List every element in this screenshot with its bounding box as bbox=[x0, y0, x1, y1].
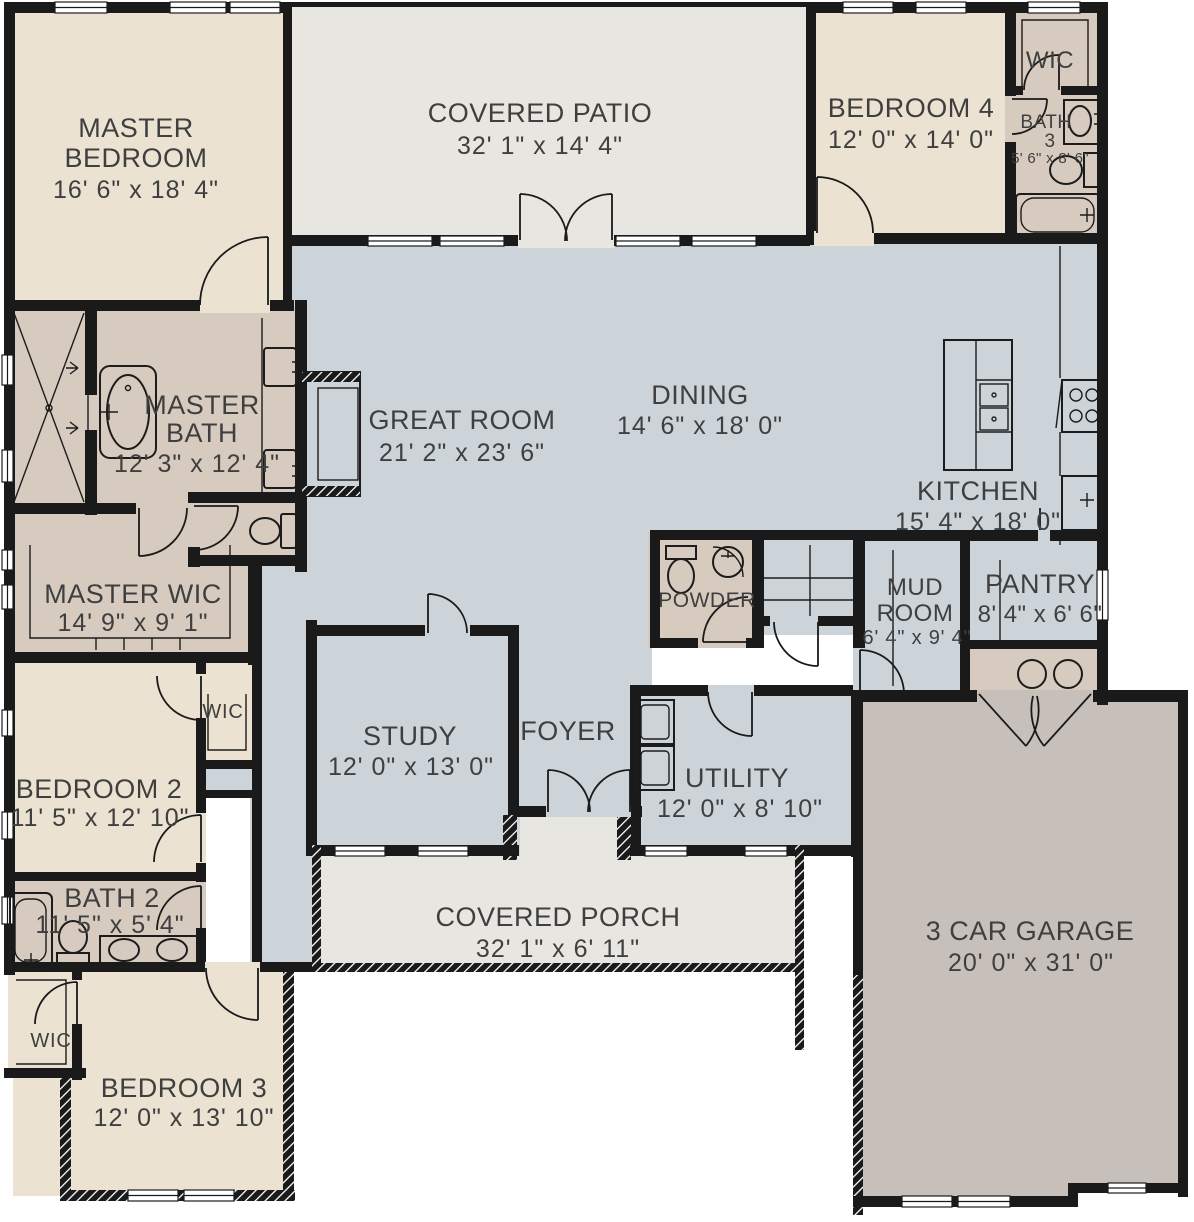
label-bath3: BATH bbox=[1020, 112, 1071, 133]
room-labels-part: 16' 6" x 18' 4" bbox=[53, 176, 219, 204]
room-labels-part: 20' 0" x 31' 0" bbox=[948, 949, 1114, 977]
walls-part bbox=[306, 620, 317, 856]
room-bedroom2-floor bbox=[8, 660, 200, 878]
label-great-room: GREAT ROOM bbox=[368, 405, 555, 435]
walls-part bbox=[960, 530, 970, 702]
room-labels-part: 14' 6" x 18' 0" bbox=[617, 412, 783, 440]
room-labels-part: 12' 0" x 13' 10" bbox=[94, 1104, 275, 1132]
walls-part bbox=[60, 1078, 71, 1200]
label-covered-porch: COVERED PORCH bbox=[435, 902, 680, 932]
room-labels-part: 11' 5" x 5' 4" bbox=[35, 911, 184, 939]
walls-part bbox=[196, 760, 258, 769]
room-labels-part: 15' 4" x 18' 0" bbox=[895, 508, 1061, 536]
label-wic-b2: WIC bbox=[202, 701, 243, 723]
label-master-wic: MASTER WIC bbox=[44, 579, 222, 609]
room-labels-part: 3 bbox=[1044, 131, 1055, 152]
walls-part bbox=[650, 530, 660, 642]
room-labels-part: 12' 0" x 8' 10" bbox=[657, 795, 823, 823]
label-bedroom4: BEDROOM 4 bbox=[828, 93, 995, 123]
walls-part bbox=[312, 963, 804, 972]
room-labels-part: 32' 1" x 6' 11" bbox=[476, 935, 640, 963]
fireplace-symbol-part bbox=[302, 372, 360, 382]
room-labels-part: ROOM bbox=[877, 600, 954, 627]
label-foyer: FOYER bbox=[520, 716, 616, 746]
label-wic-top: WIC bbox=[1026, 47, 1074, 74]
doors-part bbox=[814, 231, 874, 246]
doors-part bbox=[425, 625, 470, 636]
label-pantry: PANTRY bbox=[985, 569, 1095, 599]
label-covered-patio: COVERED PATIO bbox=[428, 98, 653, 128]
label-dining: DINING bbox=[651, 380, 749, 410]
walls-part bbox=[196, 790, 258, 798]
walls-part bbox=[617, 815, 631, 860]
floor-plan: MASTER BEDROOM 16' 6" x 18' 4" COVERED P… bbox=[0, 0, 1194, 1222]
room-labels-part: BATH bbox=[166, 418, 238, 448]
label-bedroom2: BEDROOM 2 bbox=[16, 774, 183, 804]
walls-part bbox=[188, 492, 307, 503]
floor-plan-svg: MASTER BEDROOM 16' 6" x 18' 4" COVERED P… bbox=[0, 0, 1194, 1222]
walls-part bbox=[853, 690, 977, 702]
label-study: STUDY bbox=[363, 721, 457, 751]
doors-part bbox=[853, 648, 865, 690]
walls-part bbox=[806, 2, 816, 245]
room-labels-part: 11' 5" x 12' 10" bbox=[10, 804, 189, 832]
walls-part bbox=[306, 625, 519, 636]
doors-part bbox=[698, 638, 746, 648]
label-wic-b3: WIC bbox=[30, 1030, 71, 1052]
label-utility: UTILITY bbox=[685, 763, 789, 793]
entry-landing-floor bbox=[505, 815, 632, 860]
walls-part bbox=[85, 305, 97, 395]
room-labels-part: BEDROOM bbox=[64, 143, 207, 173]
room-labels-part: 14' 9" x 9' 1" bbox=[57, 609, 208, 637]
label-mud-room: MUD bbox=[887, 574, 943, 601]
label-garage: 3 CAR GARAGE bbox=[926, 916, 1135, 946]
room-labels-part: 8' 4" x 6' 6" bbox=[978, 601, 1103, 628]
label-bedroom3: BEDROOM 3 bbox=[101, 1073, 268, 1103]
walls-part bbox=[960, 640, 1108, 649]
walls-part bbox=[4, 652, 262, 663]
walls-part bbox=[795, 845, 804, 1050]
walls-part bbox=[508, 625, 519, 817]
hall-niche-floor bbox=[202, 769, 252, 793]
walls-part bbox=[85, 430, 97, 515]
walls-part bbox=[283, 2, 292, 310]
doors-part bbox=[188, 503, 200, 547]
label-master-bedroom: MASTER bbox=[78, 113, 194, 143]
doors-part bbox=[1023, 84, 1061, 97]
doors-part bbox=[205, 962, 260, 972]
room-labels-part: 21' 2" x 23' 6" bbox=[379, 439, 545, 467]
walls-part bbox=[4, 872, 206, 881]
walls-part bbox=[853, 690, 863, 975]
room-labels-part: 32' 1" x 14' 4" bbox=[457, 132, 623, 160]
room-labels-part: 12' 0" x 13' 0" bbox=[328, 753, 494, 781]
room-labels-part: 12' 0" x 14' 0" bbox=[828, 126, 994, 154]
doors-part bbox=[977, 690, 1093, 704]
label-kitchen: KITCHEN bbox=[917, 476, 1039, 506]
room-labels-part: 12' 3" x 12' 4" bbox=[114, 450, 280, 478]
walls-part bbox=[285, 2, 812, 7]
doors-part bbox=[1005, 96, 1016, 142]
label-powder: POWDER bbox=[658, 589, 756, 612]
room-labels-part: 5' 6" x 8' 6" bbox=[1011, 150, 1089, 167]
doors-part bbox=[770, 616, 818, 626]
walls-part bbox=[312, 845, 321, 972]
doors-part bbox=[136, 503, 190, 514]
walls-part bbox=[1093, 690, 1188, 702]
fireplace-symbol-part bbox=[302, 486, 360, 496]
label-bath2: BATH 2 bbox=[64, 883, 160, 913]
walls-part bbox=[1178, 690, 1188, 1197]
walls-part bbox=[853, 975, 863, 1215]
walls-part bbox=[4, 1068, 86, 1078]
walls-part bbox=[188, 555, 307, 566]
doors-part bbox=[708, 685, 754, 696]
label-master-bath: MASTER bbox=[144, 390, 260, 420]
walls-part bbox=[283, 972, 294, 1201]
doors-part bbox=[200, 298, 270, 313]
room-labels-part: 6' 4" x 9' 4" bbox=[863, 627, 972, 649]
